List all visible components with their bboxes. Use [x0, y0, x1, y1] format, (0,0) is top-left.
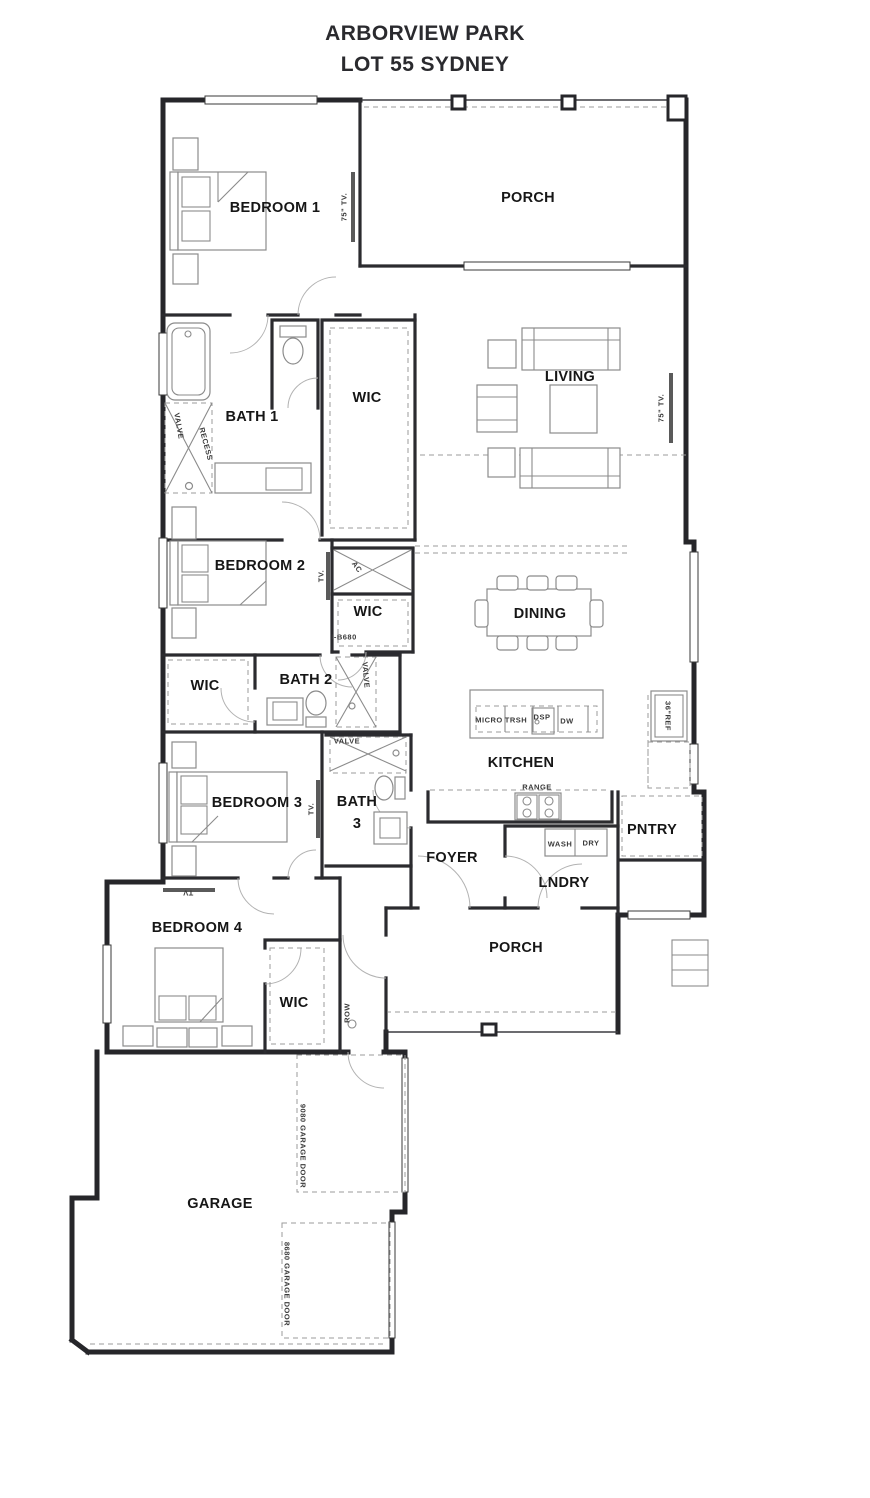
annotation-trsh-10: TRSH	[505, 716, 527, 725]
annotation-valve-8: VALVE	[334, 737, 360, 746]
annotation-8680-garage-door-21: 8680 GARAGE DOOR	[283, 1242, 292, 1326]
annotation-dsp-11: DSP	[534, 713, 551, 722]
room-label-bath-12: BATH	[337, 794, 377, 810]
room-label-dining-7: DINING	[514, 606, 567, 622]
furniture	[123, 138, 708, 1047]
annotation-dry-16: DRY	[582, 839, 599, 848]
annotation-75-tv-0: 75" TV.	[340, 193, 349, 221]
room-label-lndry-16: LNDRY	[539, 875, 590, 891]
room-label-pntry-15: PNTRY	[627, 822, 677, 838]
room-label-foyer-14: FOYER	[426, 850, 477, 866]
room-label-bath-1-3: BATH 1	[225, 409, 278, 425]
room-label-kitchen-10: KITCHEN	[488, 755, 555, 771]
room-label-living-2: LIVING	[545, 369, 595, 385]
annotation-wash-15: WASH	[548, 840, 573, 849]
room-label-bedroom-1-0: BEDROOM 1	[230, 200, 321, 216]
annotation-range-14: RANGE	[522, 783, 552, 792]
room-label-3-13: 3	[353, 816, 361, 832]
room-label-wic-6: WIC	[353, 604, 382, 620]
room-label-bedroom-3-11: BEDROOM 3	[212, 795, 303, 811]
exterior-walls	[72, 100, 704, 1352]
annotation-tv-17: TV.	[307, 803, 316, 815]
annotation-tv-18: TV	[183, 889, 194, 898]
room-label-bedroom-4-17: BEDROOM 4	[152, 920, 243, 936]
room-label-garage-20: GARAGE	[187, 1196, 252, 1212]
room-label-porch-1: PORCH	[501, 190, 555, 206]
room-label-bedroom-2-5: BEDROOM 2	[215, 558, 306, 574]
annotation-micro-9: MICRO	[475, 716, 503, 725]
room-label-bath-2-9: BATH 2	[279, 672, 332, 688]
annotation-dw-12: DW	[560, 717, 574, 726]
annotation-75-tv-1: 75" TV.	[657, 394, 666, 422]
annotation-9080-garage-door-20: 9080 GARAGE DOOR	[299, 1104, 308, 1188]
room-label-wic-8: WIC	[190, 678, 219, 694]
room-label-porch-18: PORCH	[489, 940, 543, 956]
room-label-wic-4: WIC	[352, 390, 381, 406]
floorplan-canvas: ARBORVIEW PARK LOT 55 SYDNEY	[0, 0, 870, 1498]
floorplan-drawing	[0, 0, 870, 1498]
annotation-tv-4: TV.	[317, 570, 326, 582]
annotation-row-19: ROW	[343, 1003, 352, 1023]
annotation-i-b680-6: I-B680	[331, 633, 357, 642]
annotation-36-ref-13: 36"REF	[664, 701, 673, 731]
room-label-wic-19: WIC	[279, 995, 308, 1011]
